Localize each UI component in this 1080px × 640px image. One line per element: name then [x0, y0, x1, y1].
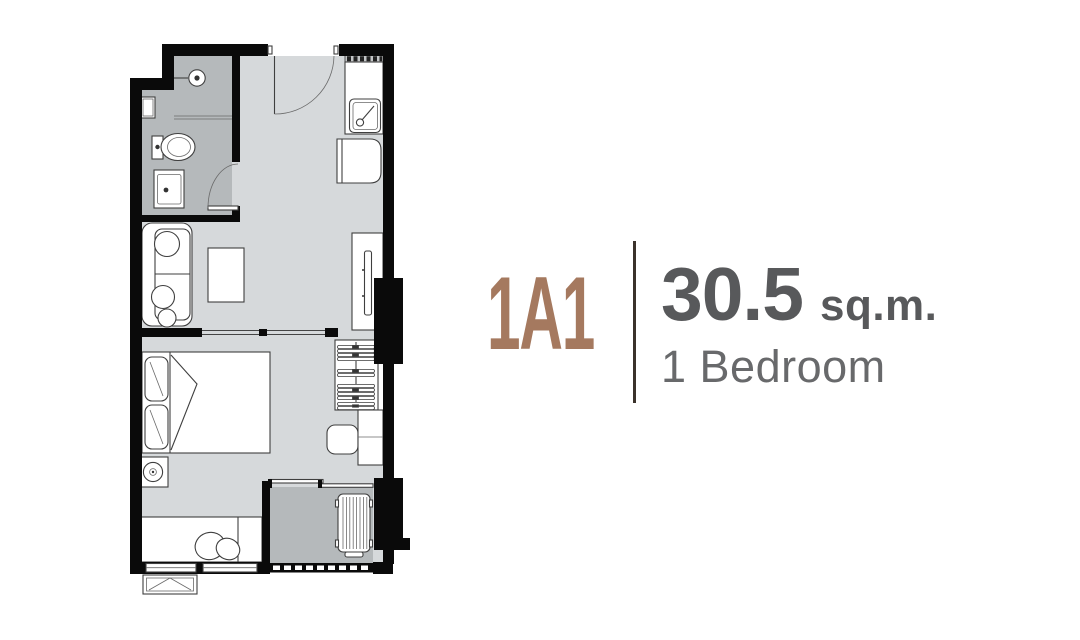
- tv: [365, 251, 372, 315]
- structural-column: [374, 278, 403, 364]
- exterior-notch: [126, 38, 162, 78]
- unit-info: 30.5 sq.m. 1 Bedroom: [661, 257, 937, 389]
- entrance-door-jamb: [268, 46, 272, 54]
- floor-plan: [0, 0, 430, 640]
- divider-line: [633, 241, 636, 403]
- unit-area-value: 30.5: [661, 257, 803, 332]
- vanity: [154, 170, 184, 208]
- unit-code: 1A1: [487, 262, 594, 366]
- side-table: [327, 425, 358, 454]
- balcony-slider-panel: [270, 480, 323, 484]
- refrigerator: [337, 139, 381, 183]
- bathroom-door-panel: [208, 206, 238, 210]
- built-in-cabinet: [358, 410, 383, 465]
- entrance-door-jamb: [334, 46, 338, 54]
- ac-base: [345, 552, 363, 557]
- toilet-flush-button: [155, 145, 159, 149]
- balcony-slider-panel: [320, 484, 373, 488]
- coffee-table: [208, 248, 244, 302]
- vanity-drain: [164, 188, 169, 193]
- unit-type: 1 Bedroom: [661, 344, 937, 389]
- unit-area-unit: sq.m.: [820, 281, 937, 331]
- sofa-pillow: [155, 232, 180, 257]
- shower-head-dot: [194, 75, 199, 80]
- unit-area-line: 30.5 sq.m.: [661, 257, 937, 332]
- balcony: [336, 494, 373, 557]
- sofa-pillow: [158, 309, 176, 327]
- unit-plan-page: 1A1 30.5 sq.m. 1 Bedroom: [0, 0, 1080, 640]
- sofa-pillow: [152, 286, 175, 309]
- faucet-base: [356, 119, 363, 126]
